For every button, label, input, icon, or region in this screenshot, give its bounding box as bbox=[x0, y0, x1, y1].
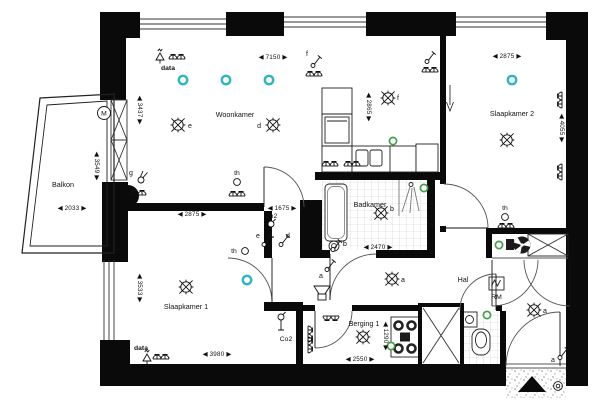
motor-label: M bbox=[101, 111, 107, 118]
ventilation-fan-icon bbox=[514, 237, 531, 254]
smoke-detector-icon bbox=[179, 76, 187, 84]
door-badkamer bbox=[330, 254, 376, 300]
dim-balkon-width: ◀ 2033 ▶ bbox=[58, 205, 87, 212]
wall-closet-w bbox=[486, 234, 492, 258]
switch-icon bbox=[425, 51, 436, 63]
dim-woonkamer-height: ◀ 3437 ▶ bbox=[136, 96, 143, 125]
dim-badkamer-height: ◀ 1620 ▶ bbox=[428, 200, 435, 229]
room-label-hal: Hal bbox=[458, 275, 469, 284]
wall-left bbox=[100, 340, 130, 386]
room-label-slaapkamer2: Slaapkamer 2 bbox=[490, 109, 534, 118]
window-slaapkamer2 bbox=[456, 17, 546, 27]
ceiling-light-icon bbox=[179, 280, 194, 295]
dim-berging-width: ◀ 2550 ▶ bbox=[346, 356, 375, 363]
wall-interior bbox=[440, 226, 446, 232]
ceiling-light-icon bbox=[171, 118, 186, 133]
dim-slaapkamer1-bottom: ◀ 3980 ▶ bbox=[203, 351, 232, 358]
switch-label-a-entry: a bbox=[551, 357, 555, 364]
th-label-slaapkamer1: th bbox=[231, 248, 237, 255]
kitchen-fridge bbox=[416, 144, 438, 172]
door-slaapkamer2 bbox=[444, 184, 488, 228]
wall-hall-s bbox=[303, 305, 315, 311]
smoke-detector-icon bbox=[265, 76, 273, 84]
socket-icon bbox=[498, 224, 514, 229]
floor-plan-drawing: Balkon Woonkamer Slaapkamer 2 Badkamer S… bbox=[0, 0, 600, 400]
room-label-slaapkamer1: Slaapkamer 1 bbox=[164, 302, 208, 311]
window-woonkamer-1 bbox=[140, 19, 226, 29]
socket-icon bbox=[306, 72, 322, 77]
light-label-a-toilet: a bbox=[543, 308, 547, 315]
room-label-woonkamer: Woonkamer bbox=[216, 110, 255, 119]
wall-toilet-e bbox=[500, 311, 506, 366]
toilet-sink bbox=[462, 312, 477, 327]
closet-cross bbox=[528, 234, 568, 256]
sensor-icon bbox=[420, 184, 427, 191]
entry-threshold bbox=[506, 364, 566, 368]
dim-slaapkamer2-height: ◀ 4055 ▶ bbox=[558, 114, 565, 143]
light-label-d: d bbox=[257, 123, 261, 130]
socket-icon bbox=[308, 337, 313, 353]
dim-keuken-height: ◀ 2865 ▶ bbox=[365, 93, 372, 122]
socket-icon bbox=[153, 355, 169, 360]
wall bbox=[366, 12, 456, 36]
dim-slaapkamer2-width: ◀ 2875 ▶ bbox=[493, 53, 522, 60]
wall-closet-n bbox=[486, 228, 570, 234]
switch-label-e: e bbox=[256, 233, 260, 240]
mv-box bbox=[506, 239, 514, 250]
thermostat-icon bbox=[242, 248, 249, 255]
thermostat-icon bbox=[234, 179, 241, 186]
socket-icon bbox=[229, 192, 245, 197]
socket-icon bbox=[323, 316, 339, 321]
thermostat-icon bbox=[502, 214, 509, 221]
light-label-f: f bbox=[397, 95, 399, 102]
ceiling-light-icon bbox=[381, 91, 396, 106]
wall-left bbox=[100, 12, 126, 100]
data-outlet-icon bbox=[156, 49, 164, 64]
sensor-icon bbox=[483, 311, 490, 318]
dim-slaapkamer1-width: ◀ 2875 ▶ bbox=[178, 211, 207, 218]
sensor-icon bbox=[389, 137, 396, 144]
wall-interior bbox=[115, 203, 264, 211]
intercom-icon bbox=[314, 286, 330, 300]
smoke-detector-icon bbox=[222, 76, 230, 84]
socket-icon bbox=[558, 92, 563, 108]
room-label-berging: Berging 1 bbox=[349, 319, 380, 328]
dim-balkon-height: ◀ 3549 ▶ bbox=[93, 152, 100, 181]
rm-label: RM bbox=[491, 294, 502, 301]
window-woonkamer-2 bbox=[284, 17, 366, 27]
dim-badkamer-width: ◀ 2470 ▶ bbox=[364, 244, 393, 251]
data-label-bottom: data bbox=[134, 345, 148, 352]
switch-label-b: b bbox=[343, 241, 347, 248]
wall-bathroom-s bbox=[376, 250, 435, 258]
wall-bathroom-s bbox=[315, 250, 330, 258]
wall-left bbox=[102, 182, 128, 262]
th-label-hal: th bbox=[502, 205, 508, 212]
door-closet-right bbox=[524, 260, 570, 306]
sensor-icon bbox=[495, 241, 502, 248]
ceiling-light-icon bbox=[500, 133, 515, 148]
socket-icon bbox=[558, 164, 563, 180]
dim-slaapkamer1-height: ◀ 3533 ▶ bbox=[136, 274, 143, 303]
co2-label-top: Co2 bbox=[265, 213, 278, 220]
wall bbox=[226, 12, 284, 36]
wall-right bbox=[566, 12, 588, 386]
ceiling-light-icon bbox=[356, 330, 371, 345]
wall-interior bbox=[296, 311, 303, 366]
light-label-e: e bbox=[188, 123, 192, 130]
wall-lamp-icon bbox=[138, 171, 148, 183]
wall-interior bbox=[264, 302, 303, 311]
smoke-detector-icon bbox=[508, 76, 516, 84]
light-label-b: b bbox=[390, 206, 394, 213]
floor-plan: Balkon Woonkamer Slaapkamer 2 Badkamer S… bbox=[0, 0, 600, 400]
window-slaapkamer1 bbox=[104, 260, 114, 340]
ceiling-light-icon bbox=[266, 118, 281, 133]
ceiling-light-icon bbox=[527, 303, 542, 318]
toilet-bowl bbox=[472, 329, 490, 355]
socket-icon bbox=[422, 68, 438, 73]
co2-label-bottom: Co2 bbox=[280, 336, 293, 343]
wall-lamp-label-g: g bbox=[129, 170, 133, 177]
room-label-balkon: Balkon bbox=[52, 180, 74, 189]
data-outlet-icon bbox=[143, 350, 151, 365]
arrow-marker bbox=[447, 85, 454, 111]
dim-gang-width: ◀ 1675 ▶ bbox=[268, 205, 297, 212]
switch-label-f: f bbox=[306, 51, 308, 58]
door-woonkamer bbox=[264, 167, 304, 207]
light-label-a-hal: a bbox=[401, 277, 405, 284]
door-berging bbox=[315, 311, 352, 348]
wall-hall-s bbox=[352, 305, 420, 311]
switch-label-d: d bbox=[286, 233, 290, 240]
dim-woonkamer-width: ◀ 7150 ▶ bbox=[259, 54, 288, 61]
room-label-badkamer: Badkamer bbox=[354, 200, 387, 209]
switch-label-a-hal: a bbox=[319, 273, 323, 280]
switch-icon bbox=[311, 55, 322, 67]
bathtub bbox=[325, 184, 347, 241]
washer-panel bbox=[400, 333, 410, 342]
wall-interior bbox=[300, 200, 322, 258]
co2-sensor-icon bbox=[278, 312, 286, 330]
smoke-detector-icon bbox=[243, 276, 251, 284]
ceiling-light-icon bbox=[385, 272, 400, 287]
socket-icon bbox=[169, 55, 185, 60]
data-label-top: data bbox=[161, 65, 175, 72]
wall-interior bbox=[440, 36, 446, 184]
dim-berging-height: ◀ 1290 ▶ bbox=[382, 322, 389, 351]
wall-bathroom-n bbox=[315, 172, 440, 180]
th-label-woonkamer: th bbox=[234, 170, 240, 177]
kitchen-tall-cabinet bbox=[322, 88, 352, 172]
